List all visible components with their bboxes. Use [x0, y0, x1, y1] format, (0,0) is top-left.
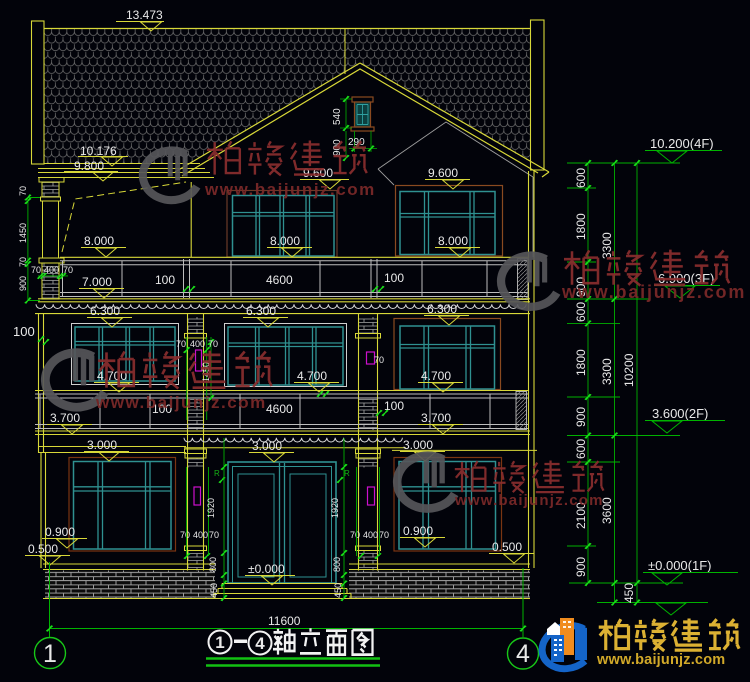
svg-text:R: R	[214, 469, 220, 478]
svg-text:3.600(2F): 3.600(2F)	[652, 406, 708, 421]
svg-text:1450: 1450	[18, 223, 28, 243]
svg-text:1920: 1920	[330, 498, 340, 518]
svg-text:400: 400	[44, 265, 59, 275]
svg-text:1: 1	[43, 640, 57, 668]
svg-text:70: 70	[374, 355, 384, 365]
svg-text:3.000: 3.000	[252, 439, 282, 453]
svg-text:70: 70	[180, 530, 190, 540]
svg-text:10.176: 10.176	[80, 144, 117, 158]
svg-text:70: 70	[63, 265, 73, 275]
svg-text:900: 900	[574, 557, 588, 577]
svg-text:1800: 1800	[574, 213, 588, 240]
svg-text:3.700: 3.700	[50, 411, 80, 425]
svg-text:6.300: 6.300	[246, 304, 276, 318]
svg-text:6.300: 6.300	[90, 304, 120, 318]
svg-text:8.000: 8.000	[438, 234, 468, 248]
svg-text:70: 70	[18, 186, 28, 196]
svg-text:3.000: 3.000	[87, 438, 117, 452]
svg-text:4.700: 4.700	[421, 369, 451, 383]
svg-text:www.baijunjz.com: www.baijunjz.com	[596, 652, 725, 668]
svg-text:R: R	[344, 469, 350, 478]
svg-text:900: 900	[18, 276, 28, 291]
svg-text:www.baijunjz.com: www.baijunjz.com	[95, 393, 267, 412]
svg-text:0.900: 0.900	[403, 524, 433, 538]
svg-text:70: 70	[379, 530, 389, 540]
svg-text:6.300: 6.300	[427, 302, 457, 316]
svg-text:±0.000: ±0.000	[248, 562, 285, 576]
svg-text:900: 900	[574, 407, 588, 427]
svg-text:13.473: 13.473	[126, 8, 163, 22]
svg-text:10.200(4F): 10.200(4F)	[650, 136, 714, 151]
svg-text:1800: 1800	[574, 349, 588, 376]
svg-text:100: 100	[384, 271, 404, 285]
svg-text:11600: 11600	[268, 614, 301, 628]
svg-text:4600: 4600	[266, 273, 293, 287]
svg-text:±0.000(1F): ±0.000(1F)	[648, 558, 712, 573]
svg-text:800: 800	[332, 557, 342, 572]
svg-text:70: 70	[209, 530, 219, 540]
svg-text:400: 400	[190, 339, 205, 349]
svg-text:70: 70	[176, 339, 186, 349]
svg-text:600: 600	[574, 168, 588, 188]
svg-text:800: 800	[208, 557, 218, 572]
svg-text:0.900: 0.900	[45, 525, 75, 539]
svg-text:4.700: 4.700	[297, 369, 327, 383]
svg-text:4600: 4600	[266, 402, 293, 416]
svg-text:8.000: 8.000	[84, 234, 114, 248]
svg-text:0.500: 0.500	[492, 540, 522, 554]
svg-text:8.000: 8.000	[270, 234, 300, 248]
svg-text:450: 450	[333, 583, 343, 598]
svg-text:400: 400	[193, 530, 208, 540]
svg-text:4: 4	[516, 640, 530, 668]
svg-text:600: 600	[574, 302, 588, 322]
svg-text:3300: 3300	[600, 358, 614, 385]
svg-text:450: 450	[209, 583, 219, 598]
svg-text:450: 450	[622, 583, 636, 603]
svg-text:www.baijunjz.com: www.baijunjz.com	[561, 282, 746, 302]
svg-text:www.baijunjz.com: www.baijunjz.com	[454, 492, 604, 509]
svg-text:4: 4	[255, 634, 265, 653]
svg-text:70: 70	[208, 339, 218, 349]
svg-text:100: 100	[13, 324, 35, 339]
svg-text:9.800: 9.800	[74, 159, 104, 173]
svg-text:70: 70	[18, 257, 28, 267]
svg-text:0.500: 0.500	[28, 542, 58, 556]
svg-text:1920: 1920	[206, 498, 216, 518]
svg-text:70: 70	[31, 265, 41, 275]
svg-text:1: 1	[215, 633, 224, 652]
svg-text:540: 540	[332, 108, 343, 125]
svg-text:3300: 3300	[600, 232, 614, 259]
svg-text:100: 100	[155, 273, 175, 287]
svg-text:7.000: 7.000	[82, 275, 112, 289]
svg-text:9.600: 9.600	[428, 166, 458, 180]
svg-text:3.700: 3.700	[421, 411, 451, 425]
svg-text:600: 600	[574, 439, 588, 459]
svg-text:70: 70	[350, 530, 360, 540]
svg-text:www.baijunjz.com: www.baijunjz.com	[204, 180, 376, 199]
svg-text:3.000: 3.000	[403, 438, 433, 452]
svg-text:10200: 10200	[622, 353, 636, 387]
svg-text:400: 400	[363, 530, 378, 540]
